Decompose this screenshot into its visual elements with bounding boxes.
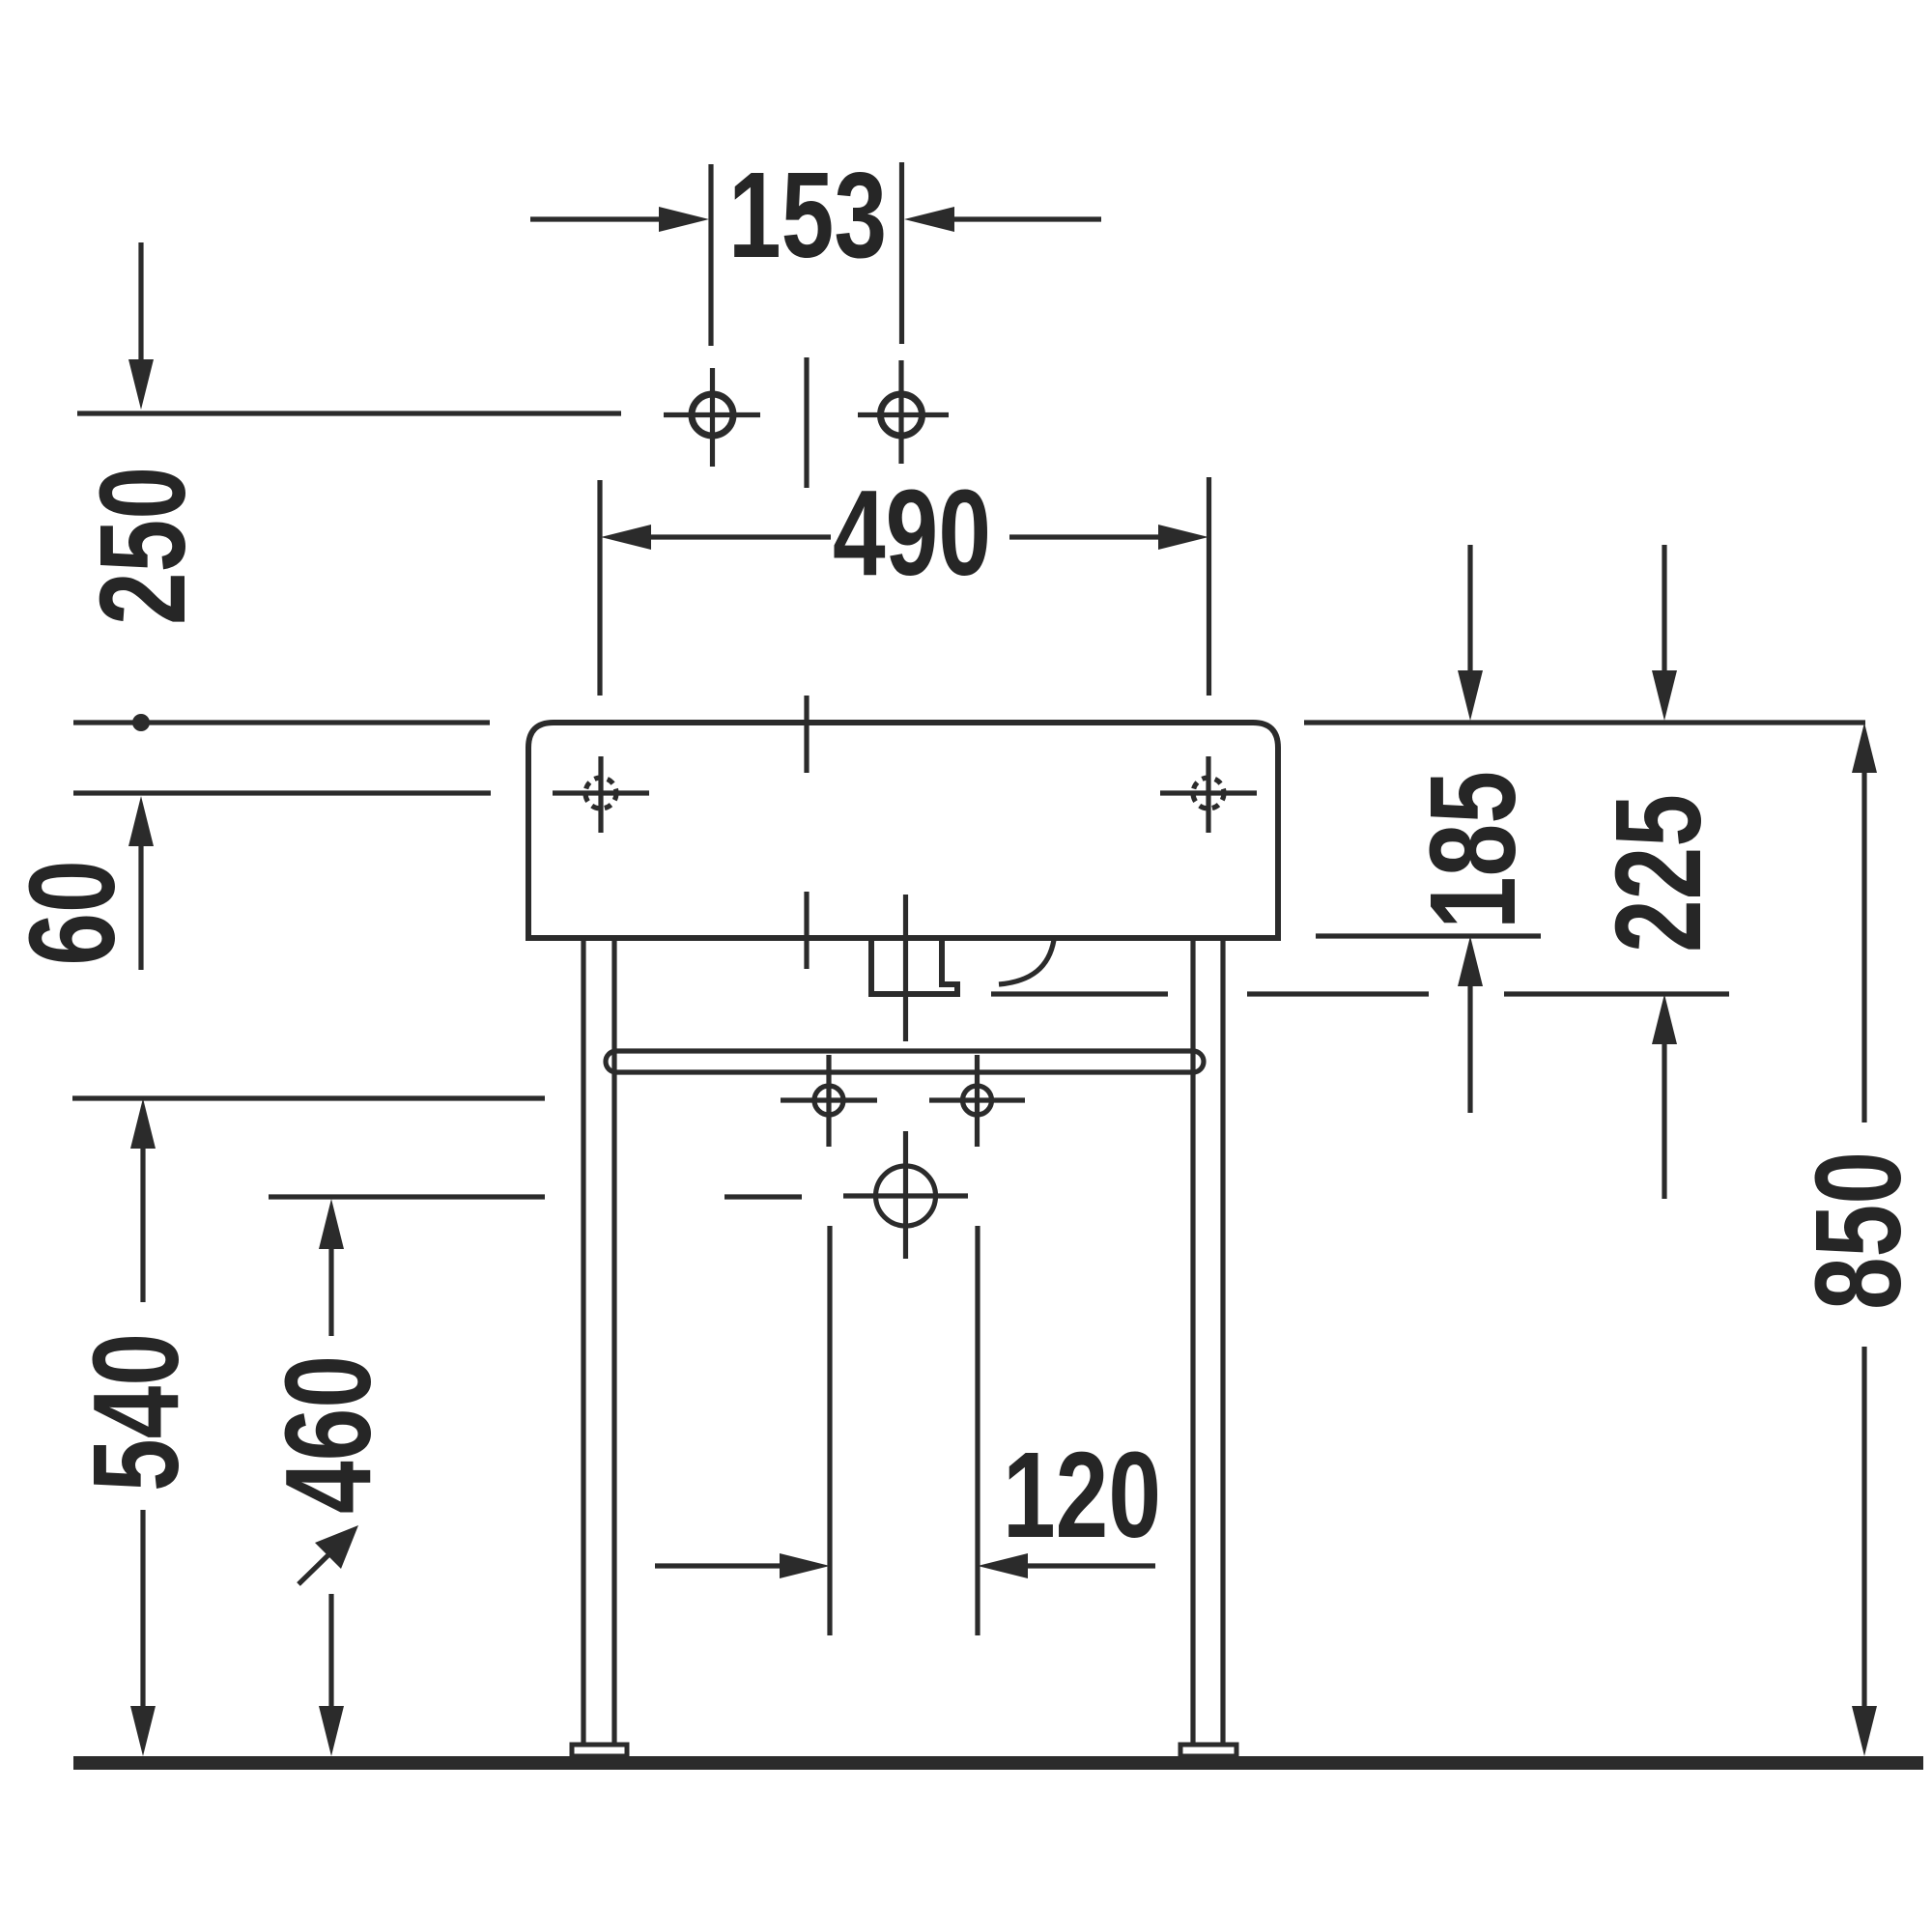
svg-text:153: 153 xyxy=(728,147,887,283)
svg-text:250: 250 xyxy=(74,467,211,625)
svg-text:60: 60 xyxy=(4,860,140,965)
svg-text:120: 120 xyxy=(1003,1427,1161,1563)
svg-text:490: 490 xyxy=(833,465,991,601)
svg-text:460: 460 xyxy=(260,1355,396,1514)
svg-text:185: 185 xyxy=(1405,771,1541,929)
svg-text:540: 540 xyxy=(68,1333,204,1492)
svg-text:850: 850 xyxy=(1790,1151,1926,1310)
svg-text:225: 225 xyxy=(1590,794,1726,952)
